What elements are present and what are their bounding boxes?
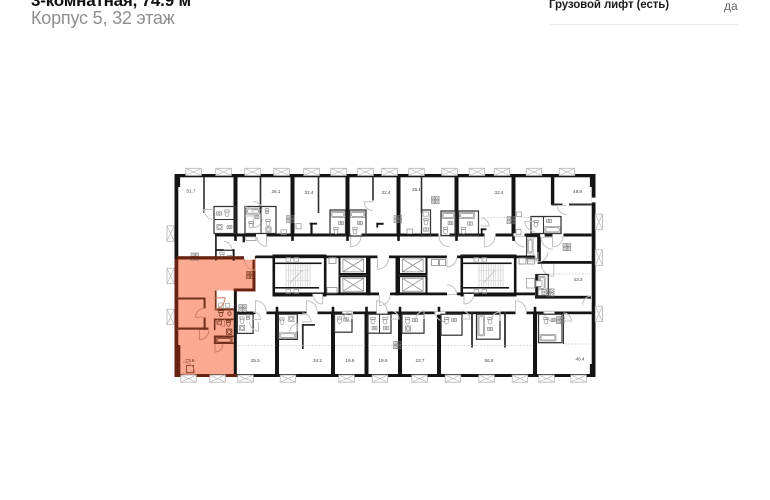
svg-text:73.6: 73.6 [186, 358, 195, 363]
svg-text:36.1: 36.1 [412, 187, 421, 192]
svg-text:56.5: 56.5 [485, 358, 494, 363]
svg-text:25.5: 25.5 [251, 358, 260, 363]
svg-text:19.9: 19.9 [346, 358, 355, 363]
svg-text:46.4: 46.4 [576, 357, 585, 362]
svg-text:32.4: 32.4 [305, 190, 314, 195]
svg-text:43.3: 43.3 [574, 277, 583, 282]
svg-text:32.4: 32.4 [382, 190, 391, 195]
svg-text:36.1: 36.1 [272, 189, 281, 194]
svg-text:23.7: 23.7 [416, 358, 425, 363]
svg-text:34.2: 34.2 [313, 358, 322, 363]
svg-text:19.9: 19.9 [379, 358, 388, 363]
svg-text:32.4: 32.4 [495, 190, 504, 195]
svg-text:48.8: 48.8 [573, 189, 582, 194]
svg-text:51.7: 51.7 [187, 189, 196, 194]
